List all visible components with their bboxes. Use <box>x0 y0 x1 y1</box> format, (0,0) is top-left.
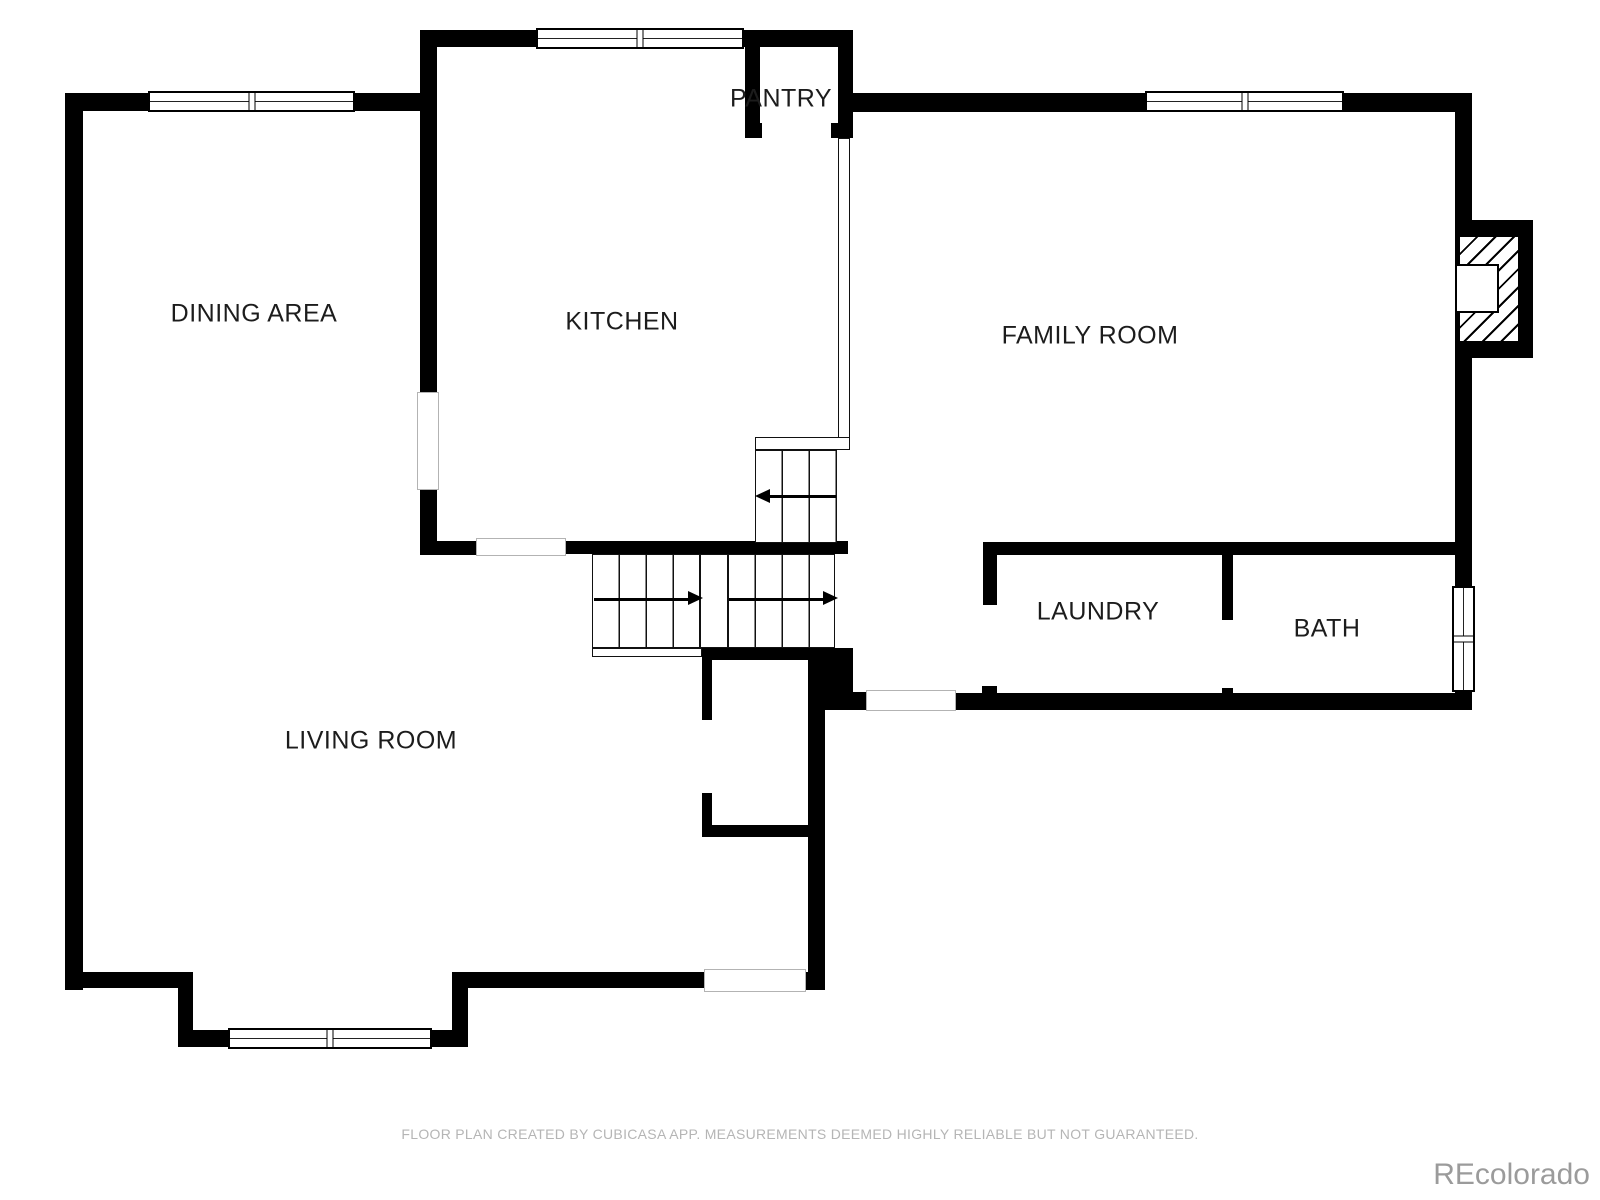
wall <box>452 972 468 1047</box>
floor-plan: DINING AREA KITCHEN PANTRY FAMILY ROOM L… <box>0 0 1600 1200</box>
window-mullion <box>1454 636 1473 643</box>
kitchen-window <box>536 28 744 49</box>
wall <box>468 972 705 988</box>
dining-window <box>148 91 355 112</box>
stair-arrow-line <box>769 495 836 498</box>
room-label-kitchen: KITCHEN <box>565 308 678 337</box>
recolorado-watermark: REcolorado <box>1433 1158 1590 1192</box>
wall <box>420 541 477 555</box>
bath-window <box>1452 586 1475 692</box>
wall <box>853 692 867 710</box>
stair-landing <box>700 554 728 648</box>
bay-window <box>228 1028 432 1049</box>
wall <box>983 555 997 605</box>
room-label-living-room: LIVING ROOM <box>285 727 457 756</box>
wall <box>83 972 193 988</box>
room-label-family-room: FAMILY ROOM <box>1002 322 1179 351</box>
window-mullion <box>637 30 644 47</box>
wall <box>1455 358 1472 590</box>
wall <box>178 988 193 1047</box>
stair-first-step <box>592 648 702 657</box>
wall <box>983 542 1472 555</box>
kitchen-doorway-opening <box>476 538 566 556</box>
fireplace-firebox <box>1455 264 1499 313</box>
room-label-bath: BATH <box>1294 615 1361 644</box>
wall <box>805 972 825 990</box>
window-mullion <box>248 93 255 110</box>
stair-arrow-down-icon <box>688 591 703 605</box>
door-jamb <box>831 123 853 138</box>
stair-ledge-line <box>838 138 850 450</box>
room-label-laundry: LAUNDRY <box>1037 598 1160 627</box>
stair-arrow-down-icon <box>823 591 838 605</box>
stair-lower-flight-left <box>592 554 700 648</box>
wall <box>702 793 712 837</box>
front-door-opening <box>704 969 806 992</box>
stair-ledge-line <box>755 437 850 450</box>
door-jamb <box>745 123 762 138</box>
wall <box>808 648 853 710</box>
wall <box>838 45 853 123</box>
room-label-pantry: PANTRY <box>730 85 832 114</box>
wall <box>808 710 825 990</box>
wall <box>955 693 1472 710</box>
hallway-doorway-opening <box>866 690 956 711</box>
stair-arrow-line <box>729 598 824 601</box>
kitchen-pass-opening <box>417 392 439 490</box>
stair-arrow-line <box>594 598 689 601</box>
room-label-dining-area: DINING AREA <box>171 300 338 329</box>
stair-arrow-up-icon <box>755 489 770 503</box>
wall <box>1222 555 1233 620</box>
wall <box>65 93 83 990</box>
family-room-window <box>1145 91 1344 112</box>
stair-lower-flight-right <box>728 554 835 648</box>
window-mullion <box>1241 93 1248 110</box>
window-mullion <box>327 1030 334 1047</box>
wall <box>712 825 808 837</box>
wall <box>702 648 808 660</box>
wall <box>702 648 712 720</box>
disclaimer-text: FLOOR PLAN CREATED BY CUBICASA APP. MEAS… <box>0 1126 1600 1142</box>
wall <box>1455 112 1472 220</box>
